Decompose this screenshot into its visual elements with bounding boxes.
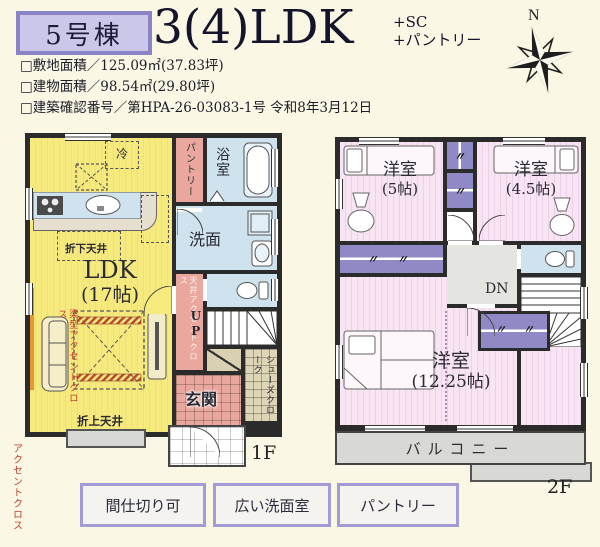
bedroom2-label: 洋室 (4.5帖) [487, 161, 575, 198]
plan-title-suffix: +SC +パントリー [393, 13, 481, 49]
tv-board-icon [147, 312, 167, 380]
window-mark [271, 219, 279, 255]
door-gap-toilet1 [203, 279, 207, 301]
balcony: バルコニー [335, 431, 586, 465]
washing-machine-icon [247, 210, 273, 236]
window-mark [580, 287, 588, 319]
door-gap-bedroom1 [448, 241, 472, 245]
window-mark [271, 149, 279, 187]
door-arc-ldk [144, 286, 172, 314]
feature-chip-partition: 間仕切り可 [80, 483, 206, 527]
floor1-plan: 冷 折下天井 LDK (17帖) [25, 133, 282, 437]
spec-land-area: □敷地面積／125.09㎡(37.83坪) [20, 56, 372, 77]
toilet2-icon [543, 248, 577, 270]
cupboard-outline [141, 195, 169, 243]
feature-chip-washroom: 広い洗面室 [213, 483, 331, 527]
stairs-down-label: DN [485, 281, 508, 297]
sink-icon [86, 196, 120, 215]
entrance-porch [168, 425, 246, 467]
balcony-label: バルコニー [406, 438, 516, 459]
bedroom3-size: (12.25帖) [393, 373, 509, 393]
feature-chip-pantry: パントリー [337, 483, 459, 527]
vanity-icon [251, 240, 273, 267]
closet-mark: 〃 [495, 321, 506, 337]
stairs-up-label: UP [188, 309, 202, 343]
property-specs: □敷地面積／125.09㎡(37.83坪) □建物面積／98.54㎡(29.80… [20, 56, 372, 119]
door-gap-bedroom2 [479, 241, 503, 245]
plan-suffix-pantry: +パントリー [393, 31, 481, 49]
plan-title: 3(4)LDK [153, 0, 353, 55]
fridge-space: 冷 [105, 141, 139, 169]
door-arc-bedroom2 [479, 215, 505, 241]
window-mark [65, 133, 111, 141]
floor1-label: 1F [251, 442, 276, 464]
window-mark [503, 137, 545, 145]
room-divider-dotted [445, 311, 447, 421]
closet-under-stairs [207, 349, 241, 371]
closet-x-mark [75, 163, 108, 191]
bathtub-icon [243, 142, 273, 198]
door-arc-bedroom3 [467, 308, 495, 336]
hall-2f [447, 245, 517, 307]
door-gap-toilet2 [517, 249, 521, 269]
unit-badge-label: 5号棟 [45, 15, 123, 52]
kitchen-counter [33, 192, 141, 219]
bath-label: 浴室 [214, 147, 230, 191]
window-mark [271, 279, 279, 301]
closet-mark: 〃 [454, 148, 465, 164]
fridge-label: 冷 [116, 148, 128, 162]
ceiling-up-label: 折上天井 [77, 415, 123, 428]
bedroom2-name: 洋室 [487, 161, 575, 181]
door-gap-ldk [172, 286, 176, 314]
ceiling-down-label: 折下天井 [65, 243, 107, 255]
bedroom1-name: 洋室 [357, 161, 443, 181]
closet-mark: 〃 [523, 321, 534, 337]
door-arc-wash [177, 209, 203, 235]
toilet1-icon [235, 279, 271, 302]
beam-accent-label: 梁型アクセントクロス [55, 309, 77, 409]
plan-suffix-sc: +SC [393, 13, 481, 31]
closet-bedroom3-wall [340, 245, 443, 273]
ldk-name: LDK [60, 257, 160, 285]
balcony-rail [470, 462, 592, 482]
stairs-up [207, 311, 277, 345]
bedroom3-label: 洋室 (12.25帖) [393, 351, 509, 392]
bedroom3-name: 洋室 [393, 351, 509, 373]
window-mark [359, 137, 399, 145]
window-mark [580, 363, 588, 397]
bedroom2-size: (4.5帖) [487, 181, 575, 198]
rug-outline [73, 310, 145, 390]
closet-mark: 〃 [367, 251, 378, 267]
bedroom1-size: (5帖) [357, 181, 443, 198]
entrance-label: 玄関 [185, 391, 217, 409]
bedroom1-label: 洋室 (5帖) [357, 161, 443, 198]
compass-north-label: N [528, 7, 540, 24]
bath-door-mark [209, 190, 225, 202]
feature-chip-label: パントリー [360, 495, 436, 516]
spec-confirmation-number: □建築確認番号／第HPA-26-03083-1号 令和8年3月12日 [20, 98, 372, 119]
spec-building-area: □建物面積／98.54㎡(29.80坪) [20, 77, 372, 98]
window-mark [25, 283, 33, 315]
window-mark [335, 179, 343, 209]
feature-chip-label: 間仕切り可 [105, 495, 180, 516]
unit-badge: 5号棟 [16, 11, 152, 55]
shoes-closet-label: シューズクローク [247, 355, 275, 417]
window-mark [335, 345, 343, 379]
compass-icon: N [498, 2, 580, 100]
wood-deck [66, 429, 146, 448]
feature-chip-label: 広い洗面室 [234, 495, 309, 516]
window-mark [25, 188, 33, 220]
accent-cloth-label: アクセントクロス [10, 443, 22, 535]
door-arc-entrance [190, 427, 220, 457]
pantry-label: パントリー [183, 142, 195, 200]
closet-mark: 〃 [397, 251, 408, 267]
floor2-plan: 〃 〃 〃 〃 DN 〃 〃 [335, 137, 586, 431]
floor2-label: 2F [547, 476, 572, 498]
closet-mark: 〃 [454, 183, 465, 199]
door-arc-bedroom1 [448, 215, 474, 241]
vase-icon-bedroom2 [545, 195, 579, 239]
floor-plan-flyer: 5号棟 3(4)LDK +SC +パントリー □敷地面積／125.09㎡(37.… [0, 0, 600, 547]
